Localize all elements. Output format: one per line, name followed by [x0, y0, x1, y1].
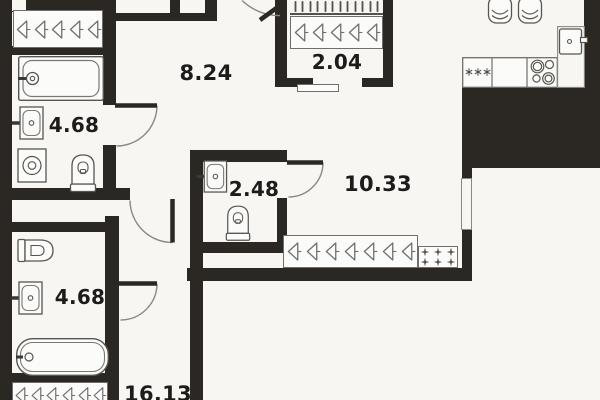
toilet-icon [224, 203, 252, 243]
wall-entry-stub-b [205, 0, 217, 14]
hanger-icon [304, 238, 321, 265]
wall-hall-bottom [0, 188, 130, 200]
door-arc-corridor [128, 198, 175, 245]
hanger-icon [76, 382, 92, 400]
room-label-room-bottom: 16.13 [124, 382, 192, 400]
wardrobe-hangers-closet [290, 16, 383, 49]
wall-right-seg-a [462, 168, 472, 178]
room-label-wc: 2.48 [229, 177, 280, 201]
hanger-icon [399, 238, 416, 265]
chair-icon [517, 0, 543, 25]
hanger-icon [32, 16, 49, 43]
room-label-closet: 2.04 [312, 50, 363, 74]
floor-plan: 8.24 2.04 4.68 2.48 10.33 4.68 16.13 [0, 0, 600, 400]
window [461, 178, 472, 230]
hanger-icon [29, 382, 45, 400]
room-label-hallway: 8.24 [179, 61, 232, 85]
door-arc-bath1 [114, 103, 160, 149]
rail-tick-icon [330, 0, 335, 13]
door-arc-entrance [240, 0, 284, 22]
wall-bath1-right-lower [103, 145, 116, 190]
rail-tick-icon [375, 0, 380, 13]
hanger-rail-top-view [290, 0, 383, 15]
hanger-icon [13, 382, 29, 400]
freezer-asterisk-icon [474, 68, 482, 76]
bathtub-icon [16, 338, 109, 376]
door-arc-bath2 [118, 281, 160, 323]
plus-mark-icon [446, 247, 456, 257]
hanger-icon [328, 19, 345, 46]
hanger-icon [323, 238, 340, 265]
rail-tick-icon [353, 0, 358, 13]
hanger-icon [292, 19, 309, 46]
hanger-icon [364, 19, 381, 46]
hanger-icon [346, 19, 363, 46]
hanger-icon [91, 382, 107, 400]
rail-tick-icon [360, 0, 365, 13]
sink-icon [12, 106, 44, 140]
rail-tick-icon [315, 0, 320, 13]
freezer-symbol [465, 64, 491, 80]
plus-mark-icon [433, 247, 443, 257]
wall-left [0, 0, 12, 400]
chair-icon [487, 0, 513, 25]
freezer-asterisk-icon [465, 68, 473, 76]
hanger-icon [342, 238, 359, 265]
toilet-icon [68, 153, 98, 193]
wall-bottom [187, 268, 472, 281]
sink-icon [196, 160, 228, 193]
sliding-door [297, 84, 339, 92]
rail-tick-icon [368, 0, 373, 13]
hanger-icon [285, 238, 302, 265]
wall-bath2-top [12, 222, 105, 232]
wall-hall-top-bar [115, 13, 217, 21]
wall-closet2-bottom-r [362, 78, 393, 87]
rail-tick-icon [293, 0, 298, 13]
washing-machine-icon [17, 148, 47, 183]
rail-tick-icon [308, 0, 313, 13]
wall-wc-bottom [190, 242, 287, 253]
plus-mark-icon [433, 257, 443, 267]
plus-mark-icon [446, 257, 456, 267]
hanger-icon [44, 382, 60, 400]
wardrobe-hangers-bottom [12, 382, 108, 400]
hanger-icon [361, 238, 378, 265]
rail-tick-icon [300, 0, 305, 13]
hanger-icon [85, 16, 102, 43]
plus-mark-icon [420, 257, 430, 267]
freezer-asterisk-icon [483, 68, 491, 76]
wardrobe-hangers-living [283, 235, 418, 268]
rail-tick-icon [338, 0, 343, 13]
hanger-icon [60, 382, 76, 400]
wall-closet2-right [383, 0, 393, 87]
room-label-kitchen-living: 10.33 [344, 172, 412, 196]
bathtub-icon [18, 56, 104, 101]
fridge-icon [557, 26, 588, 88]
room-label-bathroom-top: 4.68 [49, 113, 100, 137]
stove-icon [527, 57, 557, 87]
plus-mark-icon [420, 247, 430, 257]
toilet-icon [17, 237, 55, 264]
room-label-bathroom-bottom: 4.68 [55, 285, 106, 309]
hanger-icon [49, 16, 66, 43]
wall-entry-stub-a [170, 0, 180, 14]
door-arc-wc [286, 160, 326, 200]
hanger-icon [310, 19, 327, 46]
hanger-icon [67, 16, 84, 43]
wall-shaft-block [462, 87, 600, 168]
wardrobe-hangers-top-left [13, 10, 103, 48]
shelf-unit-plus-marks [418, 246, 458, 268]
hanger-icon [380, 238, 397, 265]
hanger-icon [14, 16, 31, 43]
rail-tick-icon [345, 0, 350, 13]
rail-tick-icon [323, 0, 328, 13]
sink-icon [11, 281, 43, 315]
